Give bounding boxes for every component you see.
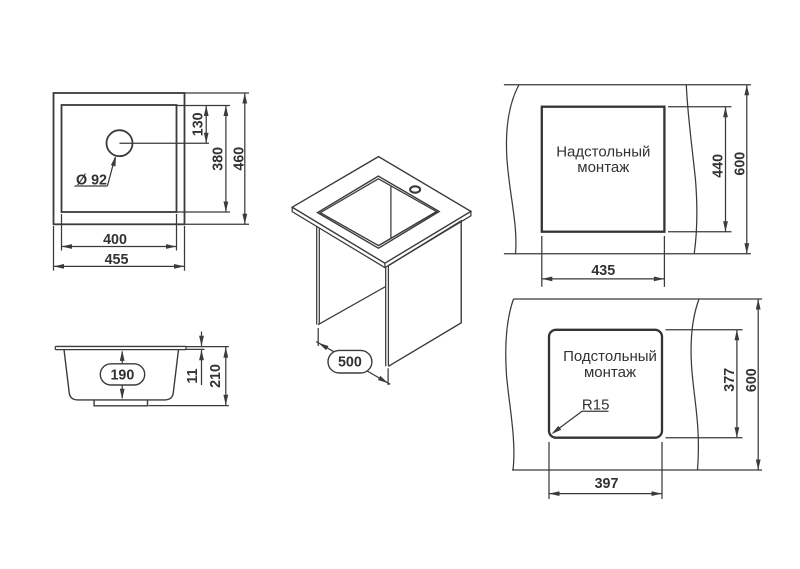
svg-text:монтаж: монтаж	[584, 364, 636, 381]
svg-text:11: 11	[185, 368, 201, 383]
svg-text:440: 440	[710, 154, 726, 178]
svg-text:397: 397	[595, 476, 619, 492]
svg-text:460: 460	[231, 147, 247, 171]
svg-text:190: 190	[110, 367, 134, 383]
svg-text:монтаж: монтаж	[577, 159, 629, 176]
svg-text:Надстольный: Надстольный	[556, 144, 650, 161]
svg-text:600: 600	[744, 368, 760, 392]
svg-text:400: 400	[103, 232, 127, 248]
svg-text:435: 435	[591, 263, 615, 279]
svg-text:600: 600	[732, 152, 748, 176]
svg-text:377: 377	[722, 368, 738, 392]
svg-text:380: 380	[211, 147, 227, 171]
svg-text:210: 210	[208, 364, 224, 388]
svg-text:130: 130	[191, 112, 207, 136]
svg-text:500: 500	[338, 355, 362, 371]
svg-text:Ø 92: Ø 92	[76, 172, 107, 188]
svg-text:R15: R15	[582, 396, 610, 413]
svg-text:455: 455	[105, 252, 129, 268]
svg-text:Подстольный: Подстольный	[563, 348, 657, 365]
